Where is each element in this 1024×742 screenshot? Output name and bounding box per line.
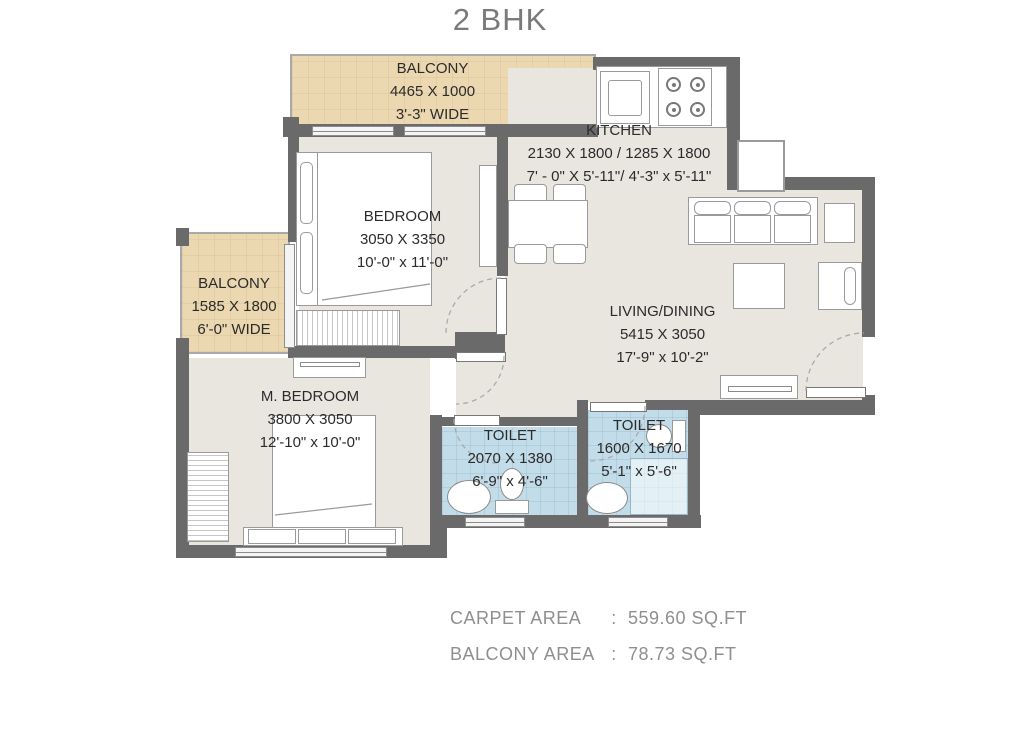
room-name: M. BEDROOM — [215, 385, 405, 408]
separator: : — [600, 608, 628, 629]
room-dim-ft: 6'-9" x 4'-6" — [445, 470, 575, 493]
pillow — [298, 529, 346, 544]
tv-icon — [300, 362, 360, 367]
wall — [862, 177, 875, 337]
page-title: 2 BHK — [0, 2, 1000, 38]
bedroom-door-leaf — [496, 278, 507, 335]
master-bedroom-label: M. BEDROOM 3800 X 3050 12'-10" x 10'-0" — [215, 385, 405, 454]
washbasin — [586, 482, 628, 514]
toilet-window — [608, 517, 668, 527]
wall — [176, 228, 189, 246]
burner-icon — [666, 102, 681, 117]
pillow — [248, 529, 296, 544]
window — [404, 126, 486, 136]
floor-plan-page: 2 BHK — [0, 0, 1024, 742]
toilet-2-label: TOILET 1600 X 1670 5'-1" x 5'-6" — [585, 414, 693, 483]
carpet-area-row: CARPET AREA : 559.60 SQ.FT — [450, 608, 747, 629]
room-dim-ft: 17'-9" x 10'-2" — [560, 346, 765, 369]
sofa-seat — [774, 215, 811, 243]
balcony-area-value: 78.73 SQ.FT — [628, 644, 737, 665]
burner-icon — [690, 102, 705, 117]
wardrobe — [296, 310, 400, 346]
toilet-window — [465, 517, 525, 527]
room-dim-mm: 1585 X 1800 — [182, 295, 286, 318]
kitchen-label: KITCHEN 2130 X 1800 / 1285 X 1800 7' - 0… — [495, 119, 743, 188]
dining-chair — [553, 244, 586, 264]
service-shaft — [737, 140, 785, 192]
wc-tank — [495, 500, 529, 514]
toilet-2-door-leaf — [590, 402, 647, 412]
room-name: KITCHEN — [495, 119, 743, 142]
wall — [283, 117, 299, 137]
room-dim-ft: 5'-1" x 5'-6" — [585, 460, 693, 483]
side-table — [824, 203, 855, 243]
bedroom-label: BEDROOM 3050 X 3350 10'-0" x 11'-0" — [310, 205, 495, 274]
sofa-seat — [734, 215, 771, 243]
room-dim-mm: 3800 X 3050 — [215, 408, 405, 431]
pillow — [348, 529, 396, 544]
room-name: TOILET — [585, 414, 693, 437]
wall — [645, 400, 690, 410]
room-name: TOILET — [445, 424, 575, 447]
room-dim-mm: 2070 X 1380 — [445, 447, 575, 470]
sofa-cushion — [734, 201, 771, 215]
cooktop — [658, 68, 712, 126]
room-name: BEDROOM — [310, 205, 495, 228]
room-dim-ft: 6'-0" WIDE — [182, 318, 286, 341]
room-dim-mm: 5415 X 3050 — [560, 323, 765, 346]
dining-table — [508, 200, 588, 248]
passage-floor — [456, 358, 505, 418]
tv-icon — [728, 386, 792, 392]
burner-icon — [690, 77, 705, 92]
balcony-area-label: BALCONY AREA — [450, 644, 600, 665]
room-dim-mm: 2130 X 1800 / 1285 X 1800 — [495, 142, 743, 165]
carpet-area-value: 559.60 SQ.FT — [628, 608, 747, 629]
dining-chair — [514, 244, 547, 264]
room-dim-ft: 10'-0" x 11'-0" — [310, 251, 495, 274]
toilet-1-label: TOILET 2070 X 1380 6'-9" x 4'-6" — [445, 424, 575, 493]
room-dim-mm: 4465 X 1000 — [310, 80, 555, 103]
room-dim-ft: 12'-10" x 10'-0" — [215, 431, 405, 454]
carpet-area-label: CARPET AREA — [450, 608, 600, 629]
wall — [430, 415, 442, 528]
wardrobe — [187, 452, 229, 542]
room-name: BALCONY — [310, 57, 555, 80]
room-dim-mm: 3050 X 3350 — [310, 228, 495, 251]
entry-door-leaf — [806, 387, 866, 398]
room-dim-ft: 7' - 0" X 5'-11"/ 4'-3" x 5'-11" — [495, 165, 743, 188]
room-dim-mm: 1600 X 1670 — [585, 437, 693, 460]
sofa-seat — [694, 215, 731, 243]
passage-floor — [505, 400, 578, 417]
wall — [430, 515, 447, 558]
balcony-left-label: BALCONY 1585 X 1800 6'-0" WIDE — [182, 272, 286, 341]
master-bedroom-door-leaf — [456, 352, 506, 362]
kitchen-sink-basin — [608, 80, 642, 116]
separator: : — [600, 644, 628, 665]
sofa-cushion — [694, 201, 731, 215]
living-dining-label: LIVING/DINING 5415 X 3050 17'-9" x 10'-2… — [560, 300, 765, 369]
room-name: LIVING/DINING — [560, 300, 765, 323]
armchair-cushion — [844, 267, 856, 305]
balcony-area-row: BALCONY AREA : 78.73 SQ.FT — [450, 644, 737, 665]
burner-icon — [666, 77, 681, 92]
sofa-cushion — [774, 201, 811, 215]
room-name: BALCONY — [182, 272, 286, 295]
wall — [690, 400, 875, 415]
window — [235, 547, 387, 557]
tv-console — [293, 357, 366, 378]
balcony-top-label: BALCONY 4465 X 1000 3'-3" WIDE — [310, 57, 555, 126]
window — [312, 126, 394, 136]
